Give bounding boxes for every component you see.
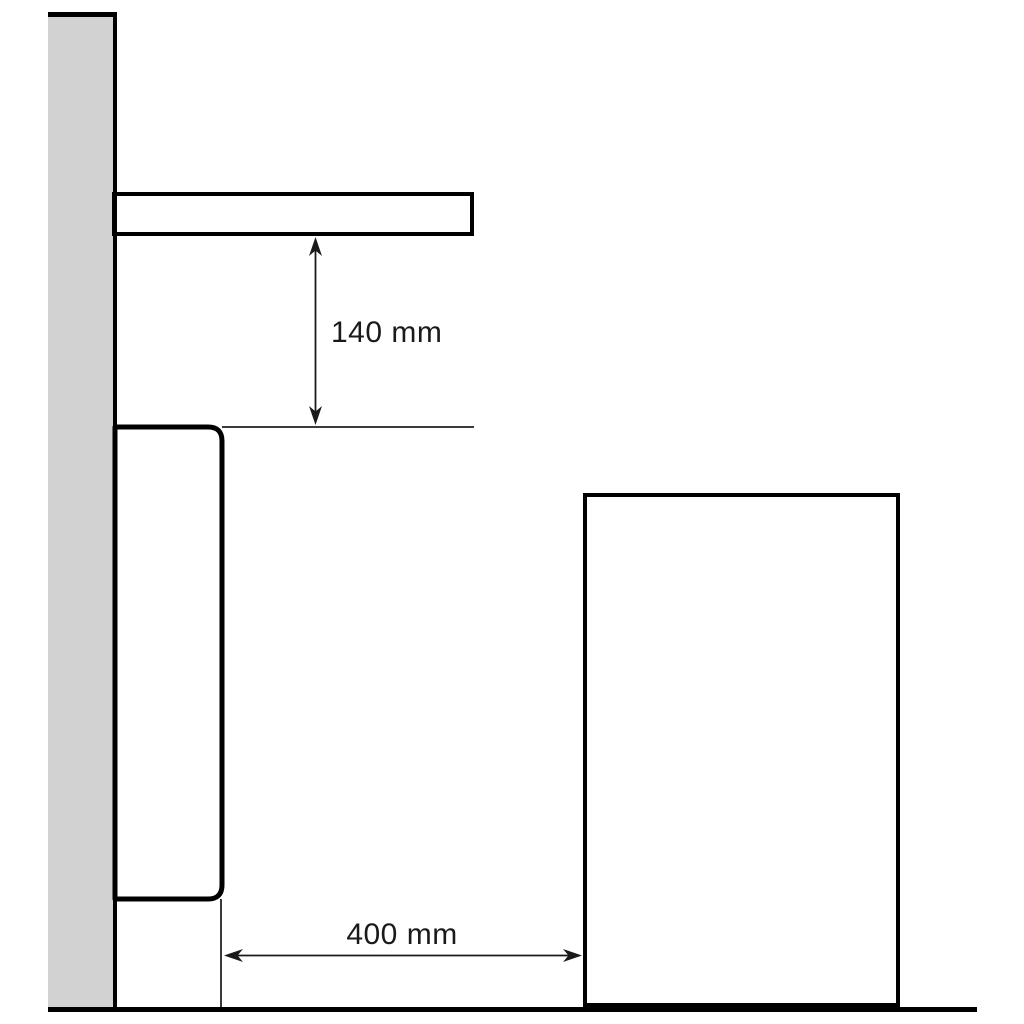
wall (48, 12, 117, 1007)
clearance-diagram-canvas: 140 mm 400 mm (0, 0, 1024, 1024)
horizontal-dimension: 400 mm (224, 918, 582, 962)
wall-shape (48, 12, 115, 1007)
side-clearance-label: 400 mm (346, 918, 457, 951)
wall-mounted-unit-shape (115, 427, 222, 899)
top-clearance-label: 140 mm (331, 316, 442, 349)
shelf-shape (114, 194, 472, 234)
clearance-diagram: 140 mm 400 mm (0, 0, 1024, 1024)
shelf (114, 194, 472, 234)
vertical-dimension: 140 mm (309, 237, 442, 425)
adjacent-unit-shape (585, 495, 898, 1005)
